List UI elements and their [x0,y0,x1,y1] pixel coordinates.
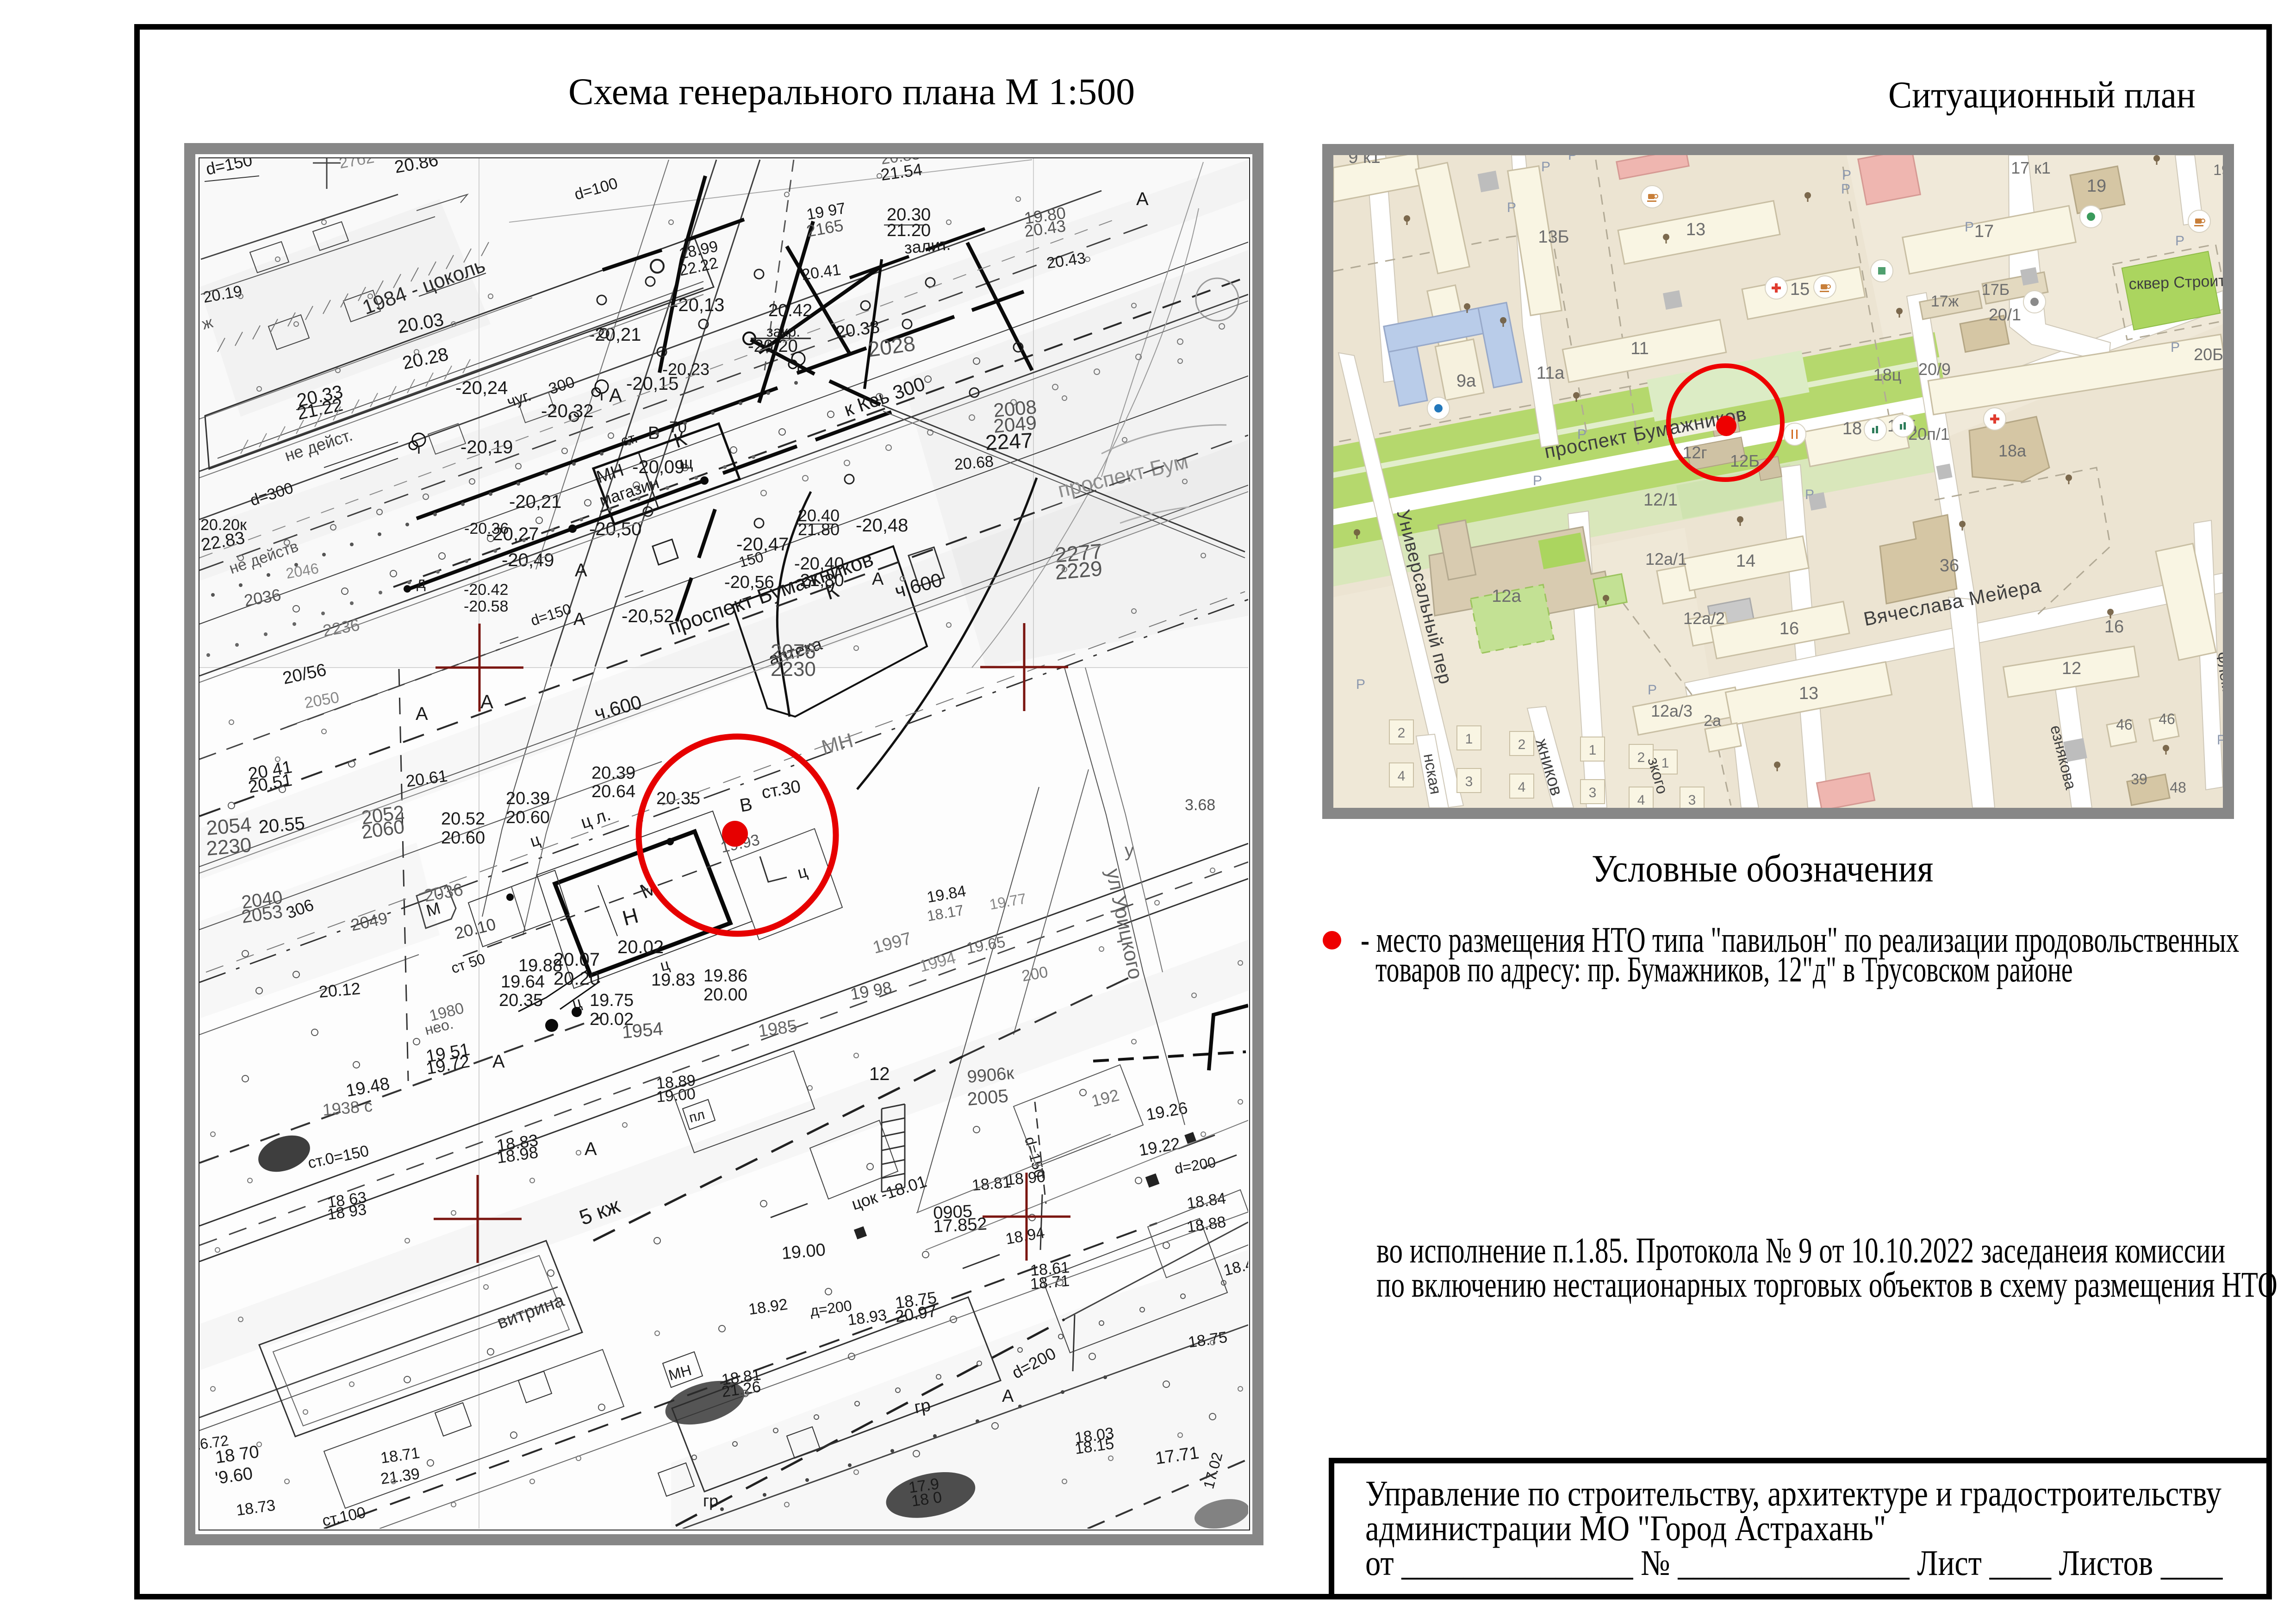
svg-text:А: А [585,1139,597,1159]
svg-text:-20,23: -20,23 [662,360,709,379]
svg-text:200: 200 [1020,963,1049,985]
svg-text:12а/1: 12а/1 [1645,550,1687,568]
svg-text:20.39: 20.39 [591,763,635,783]
svg-text:13: 13 [1799,684,1818,703]
svg-text:д=200: д=200 [809,1297,853,1319]
svg-text:-20,32: -20,32 [541,401,593,421]
svg-text:-20,48: -20,48 [856,515,908,536]
svg-text:Р: Р [1568,155,1577,163]
svg-text:Р: Р [2217,732,2223,748]
svg-text:Р: Р [1841,181,1850,197]
svg-text:МН: МН [819,729,856,759]
svg-text:19.86: 19.86 [703,966,747,986]
svg-text:18ц: 18ц [1873,365,1902,384]
svg-text:11а: 11а [1537,363,1565,383]
svg-text:20.52: 20.52 [441,809,485,829]
svg-text:2: 2 [1637,750,1645,765]
svg-text:1: 1 [1465,731,1473,747]
svg-text:1954: 1954 [621,1018,664,1043]
svg-text:12а/3: 12а/3 [1651,701,1692,720]
svg-text:залит.: залит. [903,234,951,257]
svg-text:Р: Р [1507,200,1516,215]
svg-text:19.77: 19.77 [988,890,1027,913]
svg-text:12: 12 [2062,659,2081,678]
svg-text:13: 13 [1686,220,1705,239]
svg-text:18.93: 18.93 [846,1306,888,1329]
svg-text:9906к: 9906к [966,1063,1015,1087]
svg-text:18.94: 18.94 [1004,1224,1046,1248]
svg-text:13Б: 13Б [1538,227,1569,247]
svg-text:20.60: 20.60 [441,828,485,848]
svg-text:70: 70 [669,418,687,436]
svg-text:А: А [480,691,493,712]
svg-text:Р: Р [1541,159,1550,175]
svg-text:12/1: 12/1 [1643,490,1678,510]
svg-text:19.83: 19.83 [651,970,695,990]
svg-text:-20,21: -20,21 [509,492,561,512]
svg-text:18а: 18а [1998,441,2027,460]
svg-text:17Б: 17Б [1982,281,2010,299]
svg-text:20.12: 20.12 [318,979,361,1001]
svg-text:-20,24: -20,24 [455,378,508,398]
svg-text:21.39: 21.39 [380,1465,421,1487]
svg-text:Р: Р [2175,233,2184,249]
svg-text:3: 3 [1589,785,1597,800]
svg-text:9а: 9а [1456,371,1476,391]
svg-text:А: А [1002,1387,1014,1406]
svg-text:2: 2 [1398,725,1406,741]
svg-text:20/1: 20/1 [1989,305,2021,324]
svg-text:Р: Р [1648,682,1657,698]
svg-text:4: 4 [1398,768,1406,784]
svg-text:17.852: 17.852 [933,1214,987,1237]
svg-text:16: 16 [2104,617,2124,637]
svg-text:36: 36 [1940,556,1959,575]
svg-text:Р: Р [1805,487,1814,502]
svg-text:39: 39 [2131,771,2147,787]
svg-text:-20,27: -20,27 [486,524,539,544]
svg-text:2230: 2230 [771,658,816,681]
svg-text:19.26: 19.26 [1145,1098,1189,1124]
svg-text:46: 46 [2159,711,2175,727]
svg-text:20.02: 20.02 [617,937,664,957]
svg-text:гр: гр [703,1491,718,1510]
svg-text:1997: 1997 [871,929,914,957]
svg-text:А: А [1136,189,1149,209]
svg-text:2036: 2036 [423,880,465,906]
svg-text:12: 12 [869,1064,890,1084]
svg-text:ст.100: ст.100 [321,1504,367,1529]
svg-text:48: 48 [2170,779,2186,796]
svg-text:18.71: 18.71 [380,1444,421,1467]
svg-text:19.64: 19.64 [501,972,545,992]
svg-text:2а: 2а [1704,712,1721,730]
svg-text:17: 17 [1974,222,1994,241]
svg-text:18.88: 18.88 [1186,1213,1227,1236]
svg-text:11: 11 [1630,339,1649,358]
svg-text:20.42: 20.42 [768,301,812,320]
svg-text:ц: ц [795,862,809,882]
svg-text:А: А [872,569,884,589]
svg-text:4: 4 [1518,780,1526,795]
svg-text:А: А [575,560,587,581]
svg-text:-20.58: -20.58 [464,598,508,615]
svg-text:-20,47: -20,47 [736,534,789,555]
svg-text:14: 14 [1736,551,1755,571]
svg-text:21.80: 21.80 [798,520,840,539]
svg-text:19.00: 19.00 [781,1240,826,1263]
svg-text:4: 4 [1637,793,1645,808]
svg-text:16: 16 [1780,619,1799,638]
svg-text:ц л.: ц л. [579,805,613,833]
svg-text:15: 15 [1790,280,1810,299]
svg-text:19 98: 19 98 [849,978,893,1004]
svg-text:3: 3 [1465,774,1473,789]
svg-text:д: д [417,574,426,592]
svg-text:18.73: 18.73 [235,1496,277,1519]
svg-text:18.92: 18.92 [747,1295,789,1318]
svg-text:20Б: 20Б [2194,345,2223,364]
svg-text:щ: щ [679,453,693,472]
svg-text:20.55: 20.55 [258,813,306,837]
svg-text:12а: 12а [1492,587,1521,606]
svg-text:ул Урицкого: ул Урицкого [1101,867,1147,981]
svg-text:ст.0=150: ст.0=150 [306,1142,371,1172]
svg-text:20.39: 20.39 [506,789,550,808]
svg-text:А: А [573,610,585,629]
svg-text:-20,19: -20,19 [460,437,513,457]
svg-text:12г: 12г [1682,443,1707,462]
svg-text:1994: 1994 [917,948,958,975]
svg-text:А: А [416,704,428,724]
svg-text:12а/2: 12а/2 [1683,609,1725,628]
svg-text:Н: Н [620,903,641,931]
svg-text:А: А [492,1051,505,1072]
svg-text:19: 19 [2213,162,2223,178]
svg-text:Р: Р [1577,427,1587,442]
svg-text:20.35: 20.35 [499,991,543,1010]
svg-text:пл: пл [687,1107,706,1126]
svg-text:-20,50: -20,50 [589,519,641,539]
svg-text:В: В [738,794,754,816]
svg-text:20.00: 20.00 [703,985,747,1005]
svg-text:2: 2 [1518,737,1526,752]
svg-text:19.75: 19.75 [590,991,634,1010]
svg-text:ст.30: ст.30 [760,777,802,803]
svg-text:-20,21: -20,21 [589,325,641,345]
svg-text:Р: Р [1356,677,1365,692]
svg-text:18: 18 [1842,419,1862,438]
svg-text:19.65: 19.65 [965,933,1007,957]
svg-text:20.10: 20.10 [453,914,498,943]
svg-text:-20,13: -20,13 [672,295,724,315]
svg-text:Р: Р [1842,168,1851,183]
svg-text:нео.: нео. [423,1015,455,1038]
svg-text:цок -18.01: цок -18.01 [849,1172,929,1214]
svg-text:12Б: 12Б [1730,451,1760,470]
svg-text:сквер Строител: сквер Строител [2128,271,2223,293]
svg-text:19: 19 [2087,176,2106,196]
svg-text:20.64: 20.64 [591,782,635,801]
svg-text:2229: 2229 [1054,556,1103,584]
svg-text:3: 3 [1688,793,1696,808]
svg-text:-20,49: -20,49 [502,550,554,570]
svg-text:9 к1: 9 к1 [1348,155,1380,167]
svg-text:Р: Р [2171,340,2180,355]
svg-text:2005: 2005 [966,1086,1009,1110]
svg-text:1: 1 [1589,743,1597,758]
svg-text:'9.60: '9.60 [214,1464,254,1488]
svg-text:2247: 2247 [985,428,1033,455]
svg-text:2050: 2050 [303,688,341,712]
svg-text:20/9: 20/9 [1918,360,1951,379]
svg-text:18.71: 18.71 [1029,1272,1070,1293]
svg-text:1938 с: 1938 с [322,1096,373,1119]
svg-text:192: 192 [1089,1085,1121,1110]
svg-text:-20,09: -20,09 [632,457,684,477]
svg-text:20.35: 20.35 [656,789,700,808]
svg-text:Р: Р [1965,219,1974,235]
svg-text:3.68: 3.68 [1185,796,1215,814]
svg-text:20.60: 20.60 [506,808,550,827]
svg-text:ц: ц [528,830,542,850]
svg-text:46: 46 [2116,716,2133,733]
svg-text:17ж: 17ж [1931,293,1959,310]
svg-text:гр: гр [913,1395,932,1417]
svg-text:Р: Р [1533,473,1542,488]
svg-text:20.68: 20.68 [953,453,994,474]
svg-text:17 к1: 17 к1 [2011,158,2051,177]
